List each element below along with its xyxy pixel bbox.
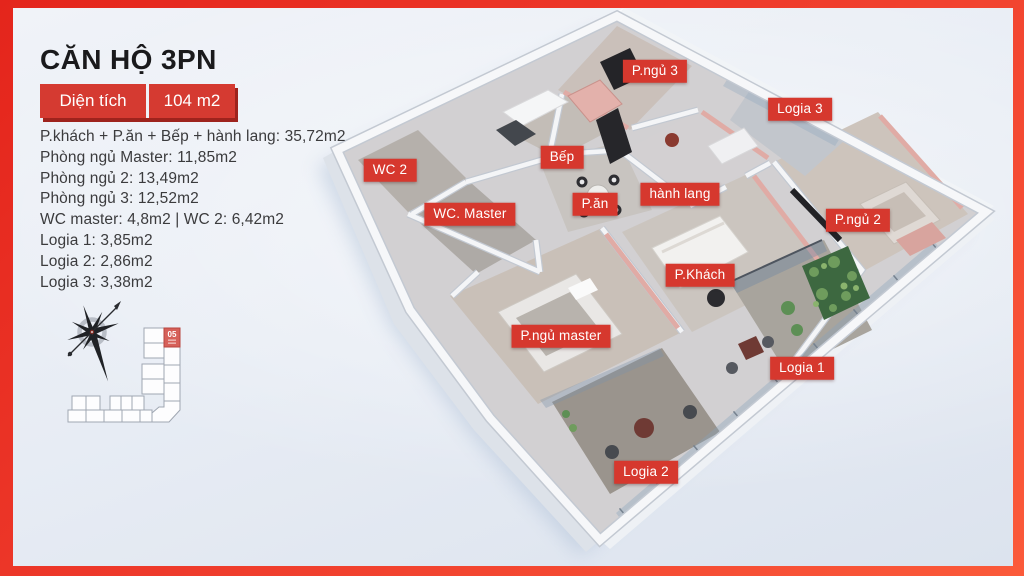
room-area-item: Phòng ngủ Master: 11,85m2	[40, 148, 346, 169]
room-area-item: Logia 1: 3,85m2	[40, 231, 346, 252]
key-plan-highlighted-unit: 05	[164, 328, 180, 347]
room-areas-list: P.khách + P.ăn + Bếp + hành lang: 35,72m…	[40, 127, 346, 293]
area-label: Diện tích	[40, 84, 146, 118]
area-value: 104 m2	[149, 84, 235, 118]
page-title: CĂN HỘ 3PN	[40, 44, 217, 76]
room-area-item: Phòng ngủ 2: 13,49m2	[40, 169, 346, 190]
key-plan: 05	[66, 318, 192, 430]
svg-text:05: 05	[168, 330, 177, 339]
room-area-item: P.khách + P.ăn + Bếp + hành lang: 35,72m…	[40, 127, 346, 148]
slide: CĂN HỘ 3PN Diện tích 104 m2 P.khách + P.…	[0, 0, 1024, 576]
floorplan-render	[300, 0, 1014, 556]
area-badge: Diện tích 104 m2	[40, 84, 235, 118]
room-area-item: Logia 2: 2,86m2	[40, 252, 346, 273]
room-area-item: WC master: 4,8m2 | WC 2: 6,42m2	[40, 210, 346, 231]
room-area-item: Phòng ngủ 3: 12,52m2	[40, 189, 346, 210]
room-area-item: Logia 3: 3,38m2	[40, 273, 346, 294]
